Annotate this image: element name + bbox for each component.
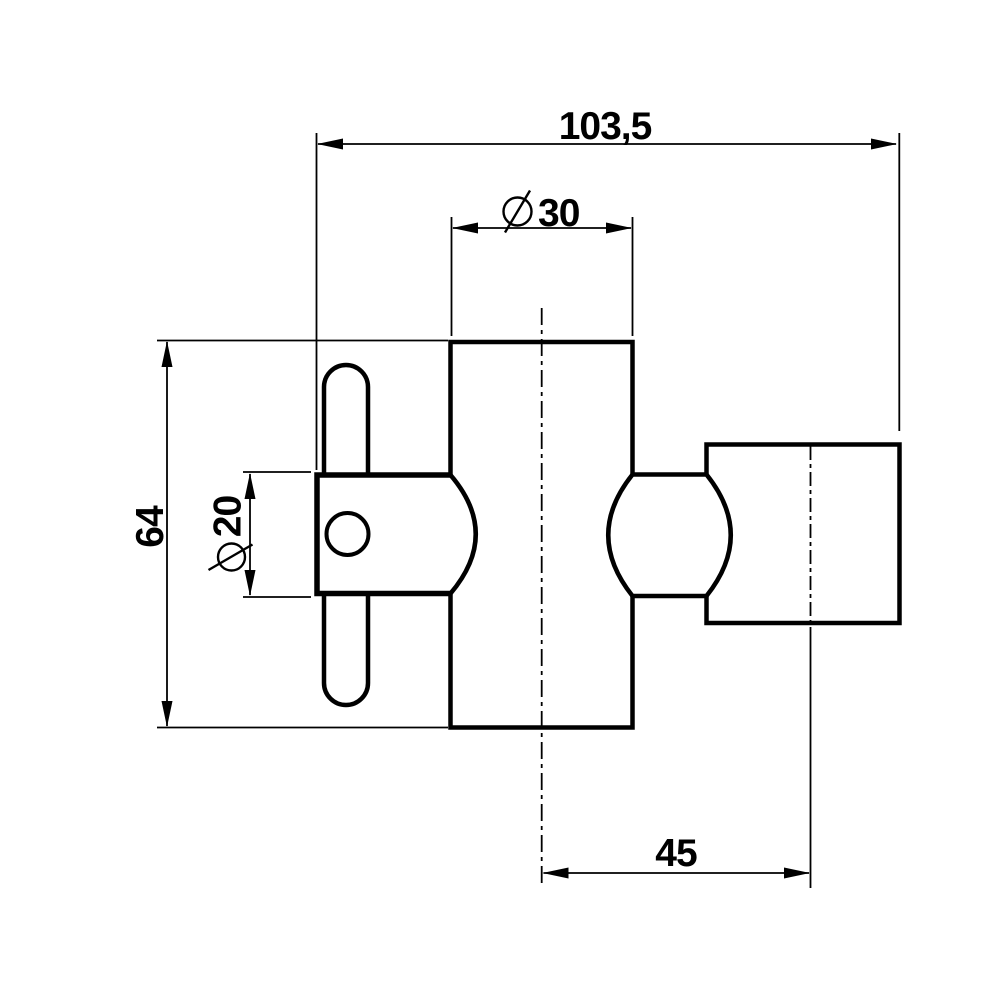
dimension-clamp-diameter: 20	[207, 472, 312, 597]
clamp-block-outline	[317, 472, 451, 596]
dim-overall-height-label: 64	[129, 505, 172, 548]
pin-handle-top	[324, 365, 368, 475]
technical-drawing-canvas: 103,5 30 64 20 45	[0, 0, 1000, 1000]
dimension-overall-height: 64	[129, 341, 448, 728]
dim-rail-offset-label: 45	[655, 832, 697, 875]
ball-joint-outline	[608, 475, 731, 597]
rail-holder-outline	[704, 442, 901, 625]
dim-overall-width-label: 103,5	[559, 105, 652, 148]
pin-handle-bottom	[324, 594, 368, 705]
diameter-icon	[209, 544, 253, 571]
drawing-svg: 103,5 30 64 20 45	[0, 0, 1000, 1000]
diameter-icon	[504, 191, 532, 233]
dim-clamp-diameter-label: 20	[207, 496, 250, 538]
clamp-block-arc	[451, 475, 476, 594]
dim-tube-diameter-label: 30	[538, 192, 580, 235]
dimension-overall-width: 103,5	[317, 105, 900, 470]
clamp-hole	[327, 513, 369, 555]
dimension-rail-offset: 45	[544, 832, 810, 875]
